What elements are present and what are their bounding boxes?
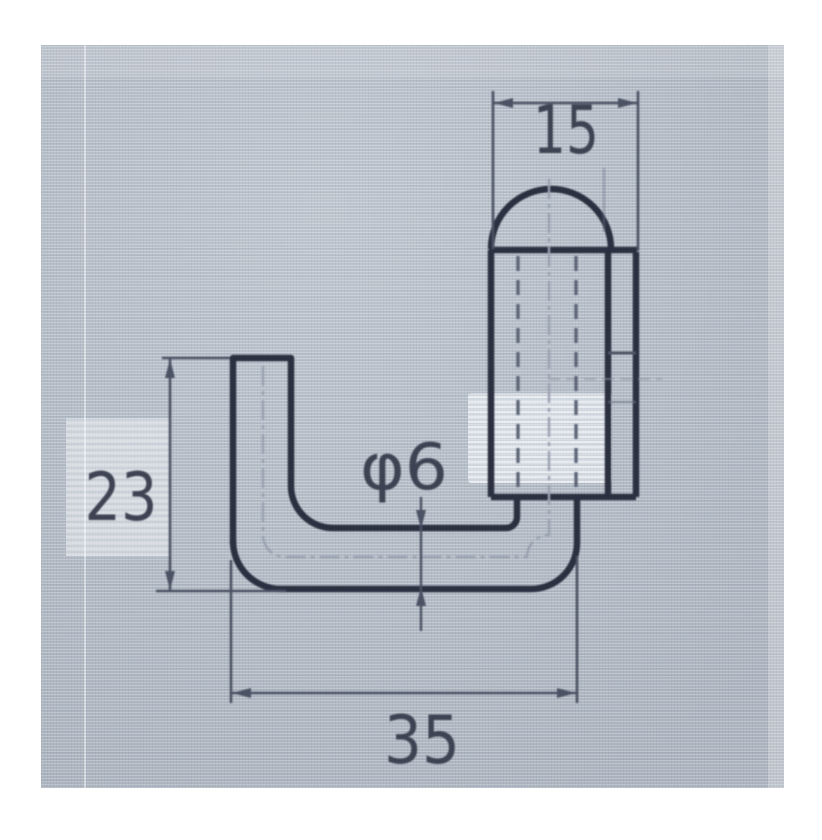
engineering-drawing: 15 23 35 φ6 [0,0,822,840]
arrow-23-bottom [165,571,175,590]
arrow-23-top [165,359,175,378]
dimension-text-23: 23 [85,458,158,536]
dimension-text-35: 35 [384,701,460,779]
dimension-phi6 [416,497,426,631]
dimension-text-15: 15 [533,91,599,169]
dimension-23 [156,358,286,591]
dimension-35 [231,556,577,703]
arrow-35-right [557,688,576,698]
hidden-rod-lines [518,256,576,492]
arrow-35-left [232,688,251,698]
arrow-15-right [618,98,637,108]
arrow-15-left [494,98,513,108]
hook-outer-contour [233,498,577,589]
dome-arc [491,189,611,249]
boss-outline [489,189,637,497]
dimension-text-phi6: φ6 [360,431,448,505]
screenshot-page: { "drawing": { "dim_top_width": "15", "d… [0,0,822,840]
